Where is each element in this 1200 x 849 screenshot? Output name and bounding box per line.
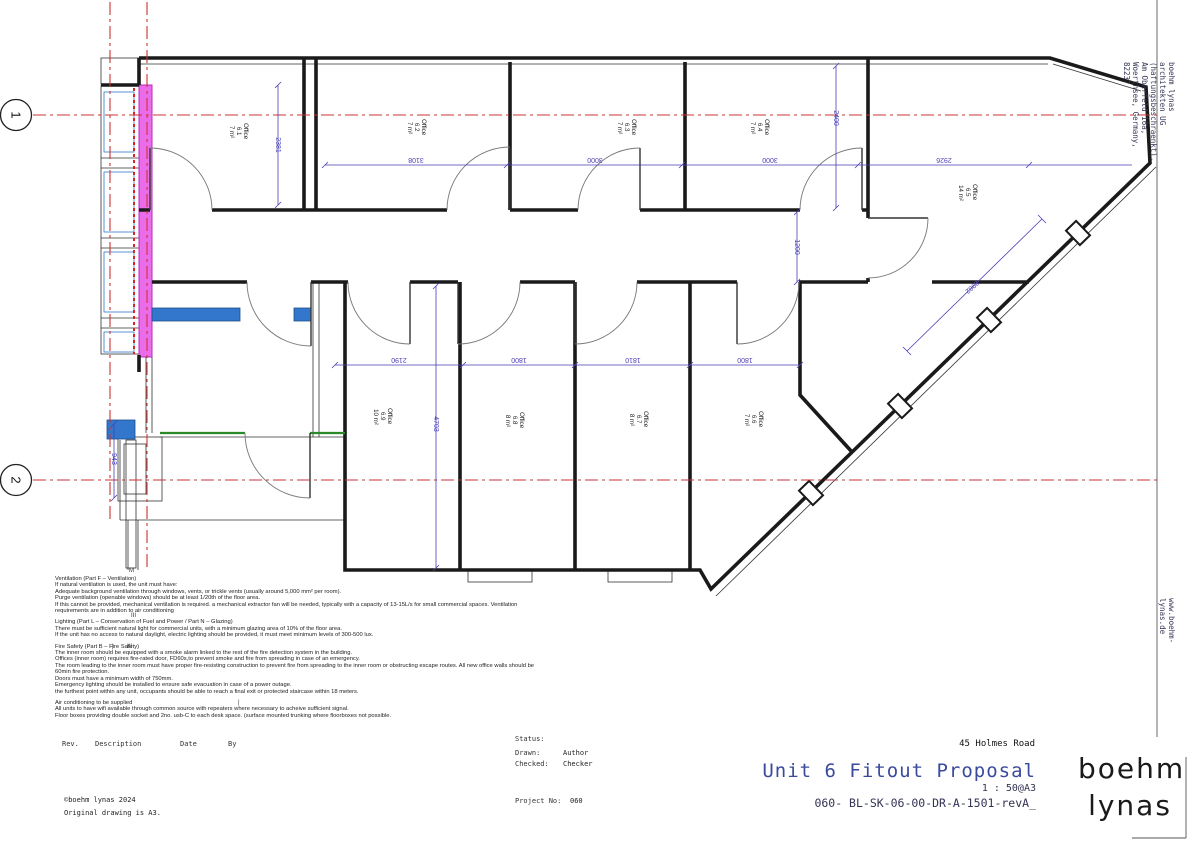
dim-text: 1800 — [511, 356, 527, 363]
firm-website-vertical: www.boehm-lynas.de — [1158, 598, 1176, 643]
dim-text: 1810 — [625, 356, 641, 363]
original-size-note: Original drawing is A3. — [64, 809, 161, 817]
dim-text: 3000 — [762, 156, 778, 163]
rev-header-rev: Rev. — [62, 740, 79, 748]
cabinet-outline — [104, 252, 134, 312]
shaft-top-cap — [101, 58, 139, 84]
dim-text: 2381 — [274, 137, 281, 153]
project-no-label: Project No: — [515, 797, 561, 805]
note-paragraph: Lighting (Part L – Conservation of Fuel … — [55, 619, 560, 638]
firm-logo-line1: boehm — [1078, 750, 1182, 787]
thin-lines — [118, 64, 1156, 596]
firm-info-vertical: boehm lynas architekten UG (haftungsbesc… — [1122, 62, 1176, 161]
drawing-number: 060- BL-SK-06-00-DR-A-1501-revA_ — [700, 796, 1036, 810]
project-address: 45 Holmes Road — [830, 739, 1035, 749]
revision-mark: | — [112, 644, 114, 650]
note-line: the furthest point within any unit, occu… — [55, 689, 560, 695]
note-paragraph: Fire Safety (Part B – Fire Safety)The in… — [55, 644, 560, 695]
drawing-title: Unit 6 Fitout Proposal — [700, 760, 1036, 782]
dim-text: 943 — [110, 453, 117, 465]
note-line: The room leading to the inner room must … — [55, 663, 560, 669]
drawn-value: Author — [563, 749, 588, 757]
dim-text: 4703 — [432, 416, 439, 432]
stair-detail-inner — [124, 444, 146, 494]
dim-2400 — [833, 63, 839, 211]
status-label: Status: — [515, 735, 545, 743]
note-line: Floor boxes providing double socket and … — [55, 713, 560, 719]
room-label-6-6: Office 6.6 7 m² — [743, 411, 764, 429]
dim-text: 3000 — [587, 156, 603, 163]
cabinet-outline — [104, 332, 134, 352]
dim-text: 1200 — [793, 239, 800, 255]
cabinet-outline — [104, 172, 134, 232]
structural-grid — [33, 2, 1157, 568]
firm-logo: boehm lynas — [1078, 750, 1182, 824]
cabinet-outline — [104, 92, 134, 152]
dim-text: 2400 — [832, 110, 839, 126]
checked-label: Checked: — [515, 760, 549, 768]
dim-text: 2190 — [391, 356, 407, 363]
rev-header-description: Description — [95, 740, 141, 748]
column-detail — [126, 440, 136, 568]
drawing-scale: 1 : 50@A3 — [700, 783, 1036, 794]
firm-logo-line2: lynas — [1078, 787, 1182, 824]
door-swing-arcs — [150, 147, 928, 498]
project-no-value: 060 — [570, 797, 583, 805]
dim-text: 1800 — [737, 356, 753, 363]
room-label-6-2: Office 6.2 7 m² — [406, 119, 427, 137]
room-label-6-3: Office 6.3 7 m² — [616, 119, 637, 137]
door-leaves — [150, 148, 928, 498]
highlighted-wall-magenta — [139, 85, 152, 357]
note-paragraph: Air conditioning to be suppliedAll units… — [55, 700, 560, 719]
blue-partition — [107, 420, 135, 439]
room-labels: Office 6.1 7 m² Office 6.2 7 m² Office 6… — [228, 119, 978, 430]
rev-header-by: By — [228, 740, 236, 748]
dim-text: 3108 — [408, 156, 424, 163]
drawn-label: Drawn: — [515, 749, 540, 757]
grid-bubble-1-label: 1 — [9, 111, 24, 118]
note-paragraph: Ventilation (Part F – Ventilation)If nat… — [55, 576, 560, 614]
revision-mark: III — [131, 613, 136, 619]
dimension-texts: 2381 3108 3000 3000 2926 2400 1200 2982 … — [110, 110, 980, 465]
note-line: If the unit has no access to natural day… — [55, 632, 560, 638]
drawing-sheet: 1 2 2381 3108 3000 3000 2926 2400 1200 2… — [0, 0, 1200, 849]
grid-bubbles: 1 2 — [1, 100, 32, 496]
room-label-6-7: Office 6.7 8 m² — [628, 411, 649, 429]
checked-value: Checker — [563, 760, 593, 768]
rev-header-date: Date — [180, 740, 197, 748]
blue-partition — [294, 308, 311, 321]
dim-text: 2926 — [936, 156, 952, 163]
grid-bubble-2-label: 2 — [9, 476, 24, 483]
revision-mark: | — [238, 700, 240, 706]
room-label-6-5: Office 6.5 14 m² — [957, 184, 978, 202]
blue-partition — [152, 308, 240, 321]
room-label-6-8: Office 6.8 8 m² — [504, 412, 525, 430]
dim-line-top — [322, 162, 1132, 168]
room-label-6-1: Office 6.1 7 m² — [228, 123, 249, 141]
notes-block: Ventilation (Part F – Ventilation)If nat… — [55, 576, 560, 724]
room-label-6-9: Office 6.9 10 m² — [372, 408, 393, 426]
revision-mark: III — [127, 644, 132, 650]
revision-mark: M — [129, 568, 134, 574]
copyright-line: ©boehm lynas 2024 — [64, 796, 136, 804]
shaft-dividers — [101, 158, 139, 328]
room-label-6-4: Office 6.4 7 m² — [749, 119, 770, 137]
stair-detail-outer — [118, 437, 162, 501]
